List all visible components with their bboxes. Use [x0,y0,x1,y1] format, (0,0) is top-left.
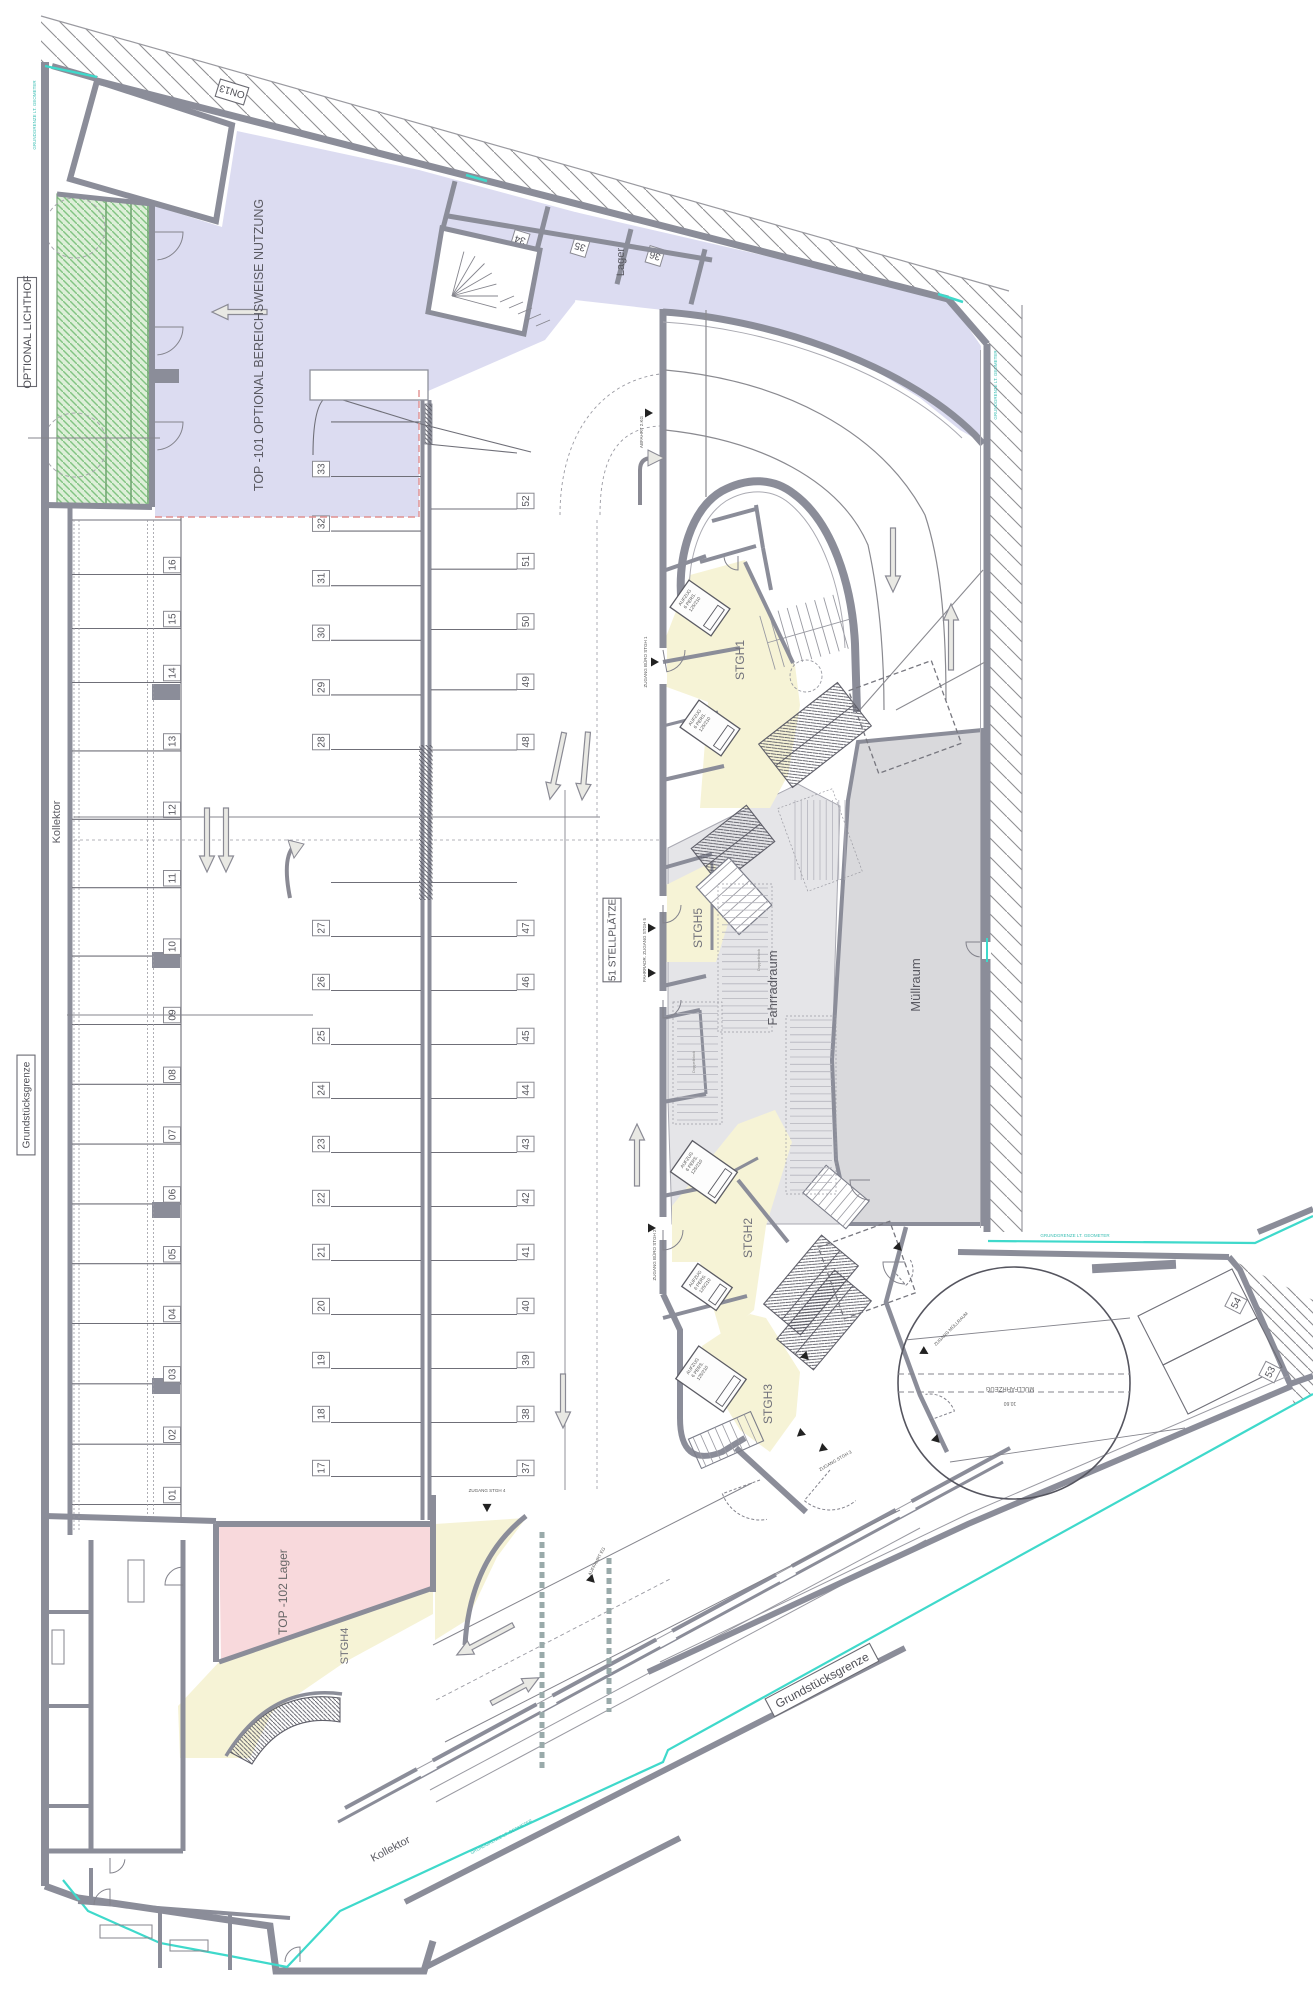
svg-text:17: 17 [316,1462,327,1474]
svg-text:16: 16 [167,559,178,571]
svg-text:47: 47 [521,922,532,934]
svg-text:08: 08 [167,1069,178,1081]
svg-text:43: 43 [521,1138,532,1150]
svg-text:22: 22 [316,1192,327,1204]
svg-text:40: 40 [521,1300,532,1312]
svg-text:Kollektor: Kollektor [51,800,63,843]
svg-text:STGH4: STGH4 [339,1628,351,1665]
svg-text:06: 06 [167,1188,178,1200]
svg-text:Müllraum: Müllraum [908,958,923,1011]
svg-text:05: 05 [167,1248,178,1260]
svg-text:FAHRRADR. ZUGANG STGH 5: FAHRRADR. ZUGANG STGH 5 [642,918,647,983]
svg-text:ZUGANG STGH 4: ZUGANG STGH 4 [469,1488,506,1493]
svg-text:48: 48 [521,736,532,748]
svg-text:51 STELLPLÄTZE: 51 STELLPLÄTZE [607,899,619,982]
svg-text:MÜLLFAHRZEUG: MÜLLFAHRZEUG [985,1385,1034,1392]
svg-text:01: 01 [167,1489,178,1501]
svg-text:21: 21 [316,1246,327,1258]
svg-text:Doppelblock: Doppelblock [691,1051,696,1073]
svg-text:04: 04 [167,1308,178,1320]
svg-text:GRUNDGRENZE LT. GEOMETER: GRUNDGRENZE LT. GEOMETER [1040,1233,1110,1238]
svg-text:38: 38 [521,1408,532,1420]
svg-text:STGH3: STGH3 [761,1384,775,1424]
svg-text:45: 45 [521,1030,532,1042]
svg-text:15: 15 [167,613,178,625]
svg-text:32: 32 [316,518,327,530]
svg-text:11: 11 [167,873,178,884]
svg-text:23: 23 [316,1138,327,1150]
svg-text:41: 41 [521,1246,532,1258]
svg-text:Fahrradraum: Fahrradraum [765,950,780,1025]
svg-text:Grundstücksgrenze: Grundstücksgrenze [22,1061,33,1148]
svg-text:12: 12 [167,804,178,816]
svg-text:51: 51 [521,555,532,567]
svg-text:31: 31 [316,572,327,584]
svg-text:25: 25 [316,1030,327,1042]
svg-text:TOP -101 OPTIONAL BEREICHSWEIS: TOP -101 OPTIONAL BEREICHSWEISE NUTZUNG [252,199,266,491]
svg-text:13: 13 [167,735,178,747]
svg-text:52: 52 [521,495,532,507]
svg-text:GRUNDGRENZE LT. GEOMETER: GRUNDGRENZE LT. GEOMETER [993,350,998,420]
svg-text:ZUGANG BÜRO STGH 1: ZUGANG BÜRO STGH 1 [642,636,648,688]
svg-text:30: 30 [316,627,327,639]
svg-text:28: 28 [316,736,327,748]
svg-text:Lager: Lager [615,248,627,276]
svg-text:STGH2: STGH2 [741,1218,755,1258]
svg-text:STGH5: STGH5 [691,908,705,948]
svg-text:STGH1: STGH1 [733,640,747,680]
svg-text:02: 02 [167,1429,178,1441]
svg-text:39: 39 [521,1354,532,1366]
svg-text:42: 42 [521,1192,532,1204]
svg-text:ABFAHRT 2.KG: ABFAHRT 2.KG [639,415,644,448]
svg-text:14: 14 [167,667,178,679]
svg-text:20: 20 [316,1300,327,1312]
svg-text:50: 50 [521,616,532,628]
svg-text:46: 46 [521,976,532,988]
svg-text:27: 27 [316,922,327,934]
svg-text:ZUGANG BÜRO STGH 2: ZUGANG BÜRO STGH 2 [651,1229,657,1281]
svg-text:OPTIONAL LICHTHOF: OPTIONAL LICHTHOF [22,275,34,389]
svg-text:10: 10 [167,941,178,953]
svg-text:03: 03 [167,1368,178,1380]
svg-text:18: 18 [316,1408,327,1420]
svg-text:24: 24 [316,1084,327,1096]
svg-text:07: 07 [167,1129,178,1141]
svg-text:19: 19 [316,1354,327,1366]
svg-text:26: 26 [316,976,327,988]
svg-text:TOP -102 Lager: TOP -102 Lager [276,1549,290,1635]
svg-text:37: 37 [521,1462,532,1474]
svg-text:49: 49 [521,676,532,688]
svg-text:GRUNDGRENZE LT. GEOMETER: GRUNDGRENZE LT. GEOMETER [32,80,37,150]
svg-text:29: 29 [316,681,327,693]
svg-text:10.60: 10.60 [1004,1400,1017,1406]
svg-text:33: 33 [316,463,327,475]
svg-text:Doppelblock: Doppelblock [756,949,761,971]
svg-text:44: 44 [521,1084,532,1096]
